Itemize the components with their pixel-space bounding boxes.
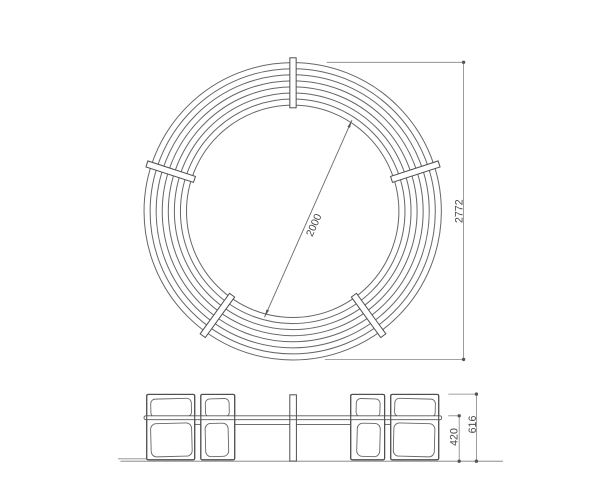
svg-text:420: 420: [448, 428, 460, 446]
svg-text:616: 616: [467, 416, 479, 434]
svg-text:2772: 2772: [454, 199, 466, 223]
svg-text:2000: 2000: [304, 212, 325, 239]
